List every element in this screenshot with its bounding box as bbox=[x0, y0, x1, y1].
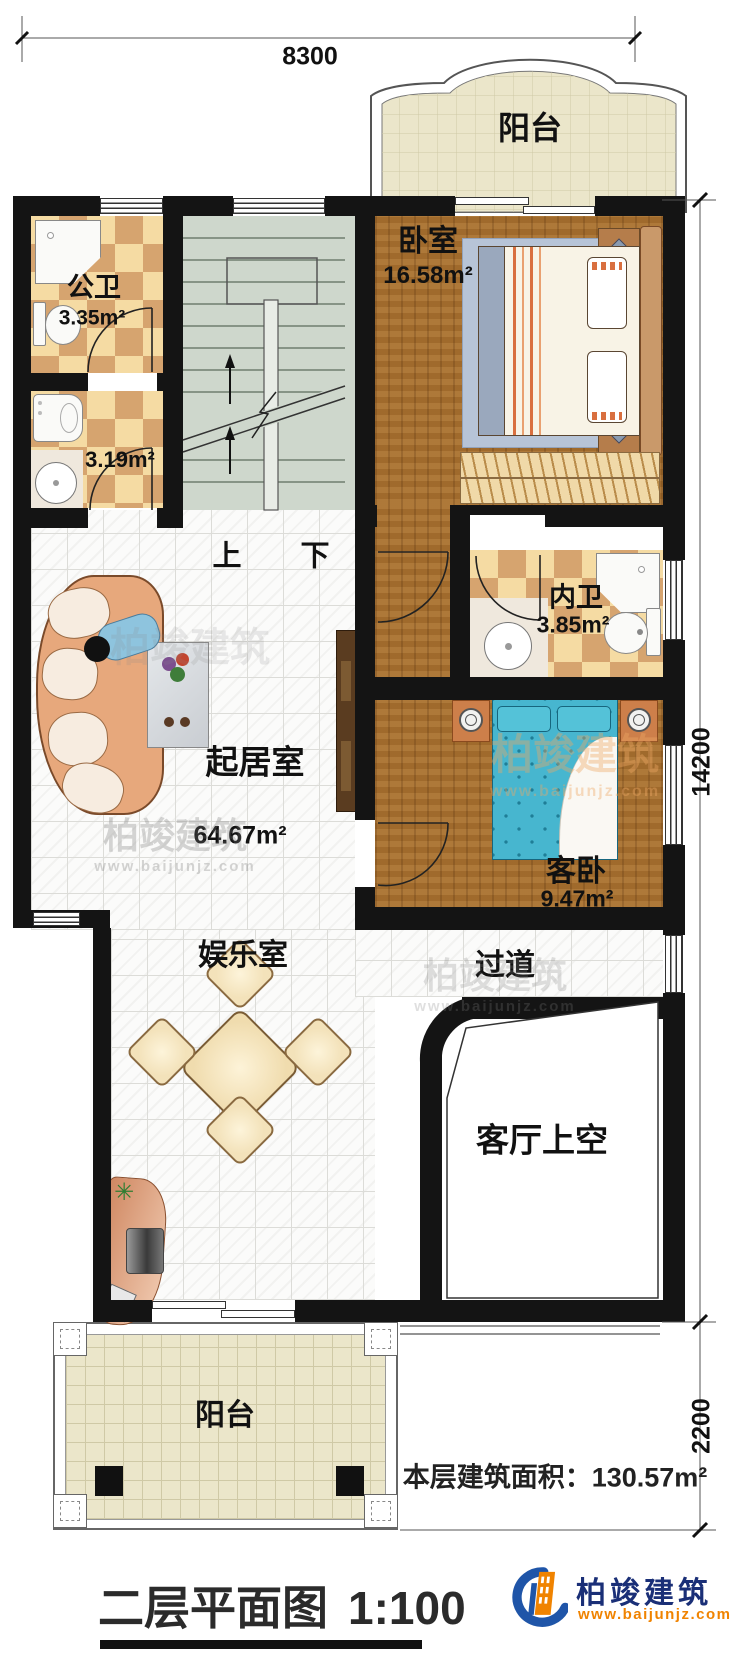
sliding-door bbox=[152, 1301, 226, 1309]
room-area-guest: 9.47m² bbox=[541, 888, 614, 911]
pillow bbox=[587, 351, 627, 423]
bed-headboard bbox=[640, 226, 662, 456]
area-summary: 本层建筑面积：130.57m² bbox=[403, 1465, 708, 1492]
person-head bbox=[84, 636, 110, 662]
shower-drain-dot bbox=[47, 232, 54, 239]
room-label-inner-bath: 内卫 bbox=[549, 585, 603, 612]
shower-drain-dot bbox=[638, 566, 645, 573]
room-label-corridor: 过道 bbox=[475, 951, 535, 981]
dim-right-lower: 2200 bbox=[690, 1398, 715, 1454]
pillow bbox=[587, 257, 627, 329]
wall bbox=[13, 373, 88, 391]
balcony-post bbox=[364, 1322, 398, 1356]
wall bbox=[450, 527, 470, 677]
guest-bed bbox=[492, 698, 618, 860]
wall bbox=[93, 1300, 152, 1322]
sliding-door bbox=[455, 197, 529, 205]
stairs-down-label: 下 bbox=[300, 543, 329, 572]
title-underline bbox=[100, 1640, 422, 1649]
wall bbox=[355, 505, 377, 527]
column bbox=[336, 1466, 364, 1496]
bed bbox=[478, 246, 640, 436]
cabinet bbox=[336, 630, 356, 812]
room-area-inner-bath: 3.85m² bbox=[537, 614, 610, 637]
window bbox=[33, 912, 80, 926]
room-label-entertainment: 娱乐室 bbox=[198, 941, 288, 971]
room-label-public-bath: 公卫 bbox=[67, 275, 121, 302]
wall bbox=[157, 508, 183, 528]
wall bbox=[295, 1300, 680, 1322]
pillow bbox=[557, 706, 611, 732]
logo: 柏竣建筑 www.baijunjz.com bbox=[512, 1558, 722, 1650]
wall bbox=[13, 196, 31, 928]
wall bbox=[355, 907, 685, 930]
column bbox=[95, 1466, 123, 1496]
wall bbox=[355, 677, 685, 700]
sliding-door bbox=[221, 1310, 295, 1318]
plan-title: 二层平面图 bbox=[98, 1582, 328, 1634]
computer-monitor bbox=[126, 1228, 164, 1274]
toilet-bowl bbox=[604, 612, 648, 654]
stairs-up-label: 上 bbox=[212, 543, 241, 572]
blanket-fold bbox=[559, 737, 617, 859]
coffee-table bbox=[147, 642, 209, 748]
room-label-balcony-bottom: 阳台 bbox=[195, 1401, 255, 1431]
wall bbox=[420, 1055, 442, 1322]
wall bbox=[355, 527, 375, 820]
room-area-living: 64.67m² bbox=[193, 824, 286, 849]
bath-sink bbox=[484, 622, 532, 670]
wall bbox=[450, 505, 685, 515]
nightstand bbox=[452, 700, 490, 742]
logo-url: www.baijunjz.com bbox=[578, 1606, 731, 1623]
logo-icon bbox=[512, 1564, 568, 1634]
room-area-bedroom: 16.58m² bbox=[383, 264, 472, 288]
wall bbox=[355, 196, 375, 527]
room-label-living: 起居室 bbox=[206, 746, 305, 779]
balcony-post bbox=[364, 1494, 398, 1528]
plant: ✳ bbox=[114, 1178, 134, 1207]
window bbox=[233, 198, 325, 214]
nightstand bbox=[620, 700, 658, 742]
room-area-public-bath: 3.35m² bbox=[59, 308, 126, 329]
floor-plan-canvas: ✳ bbox=[0, 0, 750, 1662]
room-label-bedroom: 卧室 bbox=[398, 227, 458, 257]
pillow bbox=[497, 706, 551, 732]
wall bbox=[163, 196, 183, 528]
room-label-void: 客厅上空 bbox=[476, 1124, 608, 1157]
wall bbox=[462, 997, 663, 1019]
area-summary-value: 130.57m² bbox=[592, 1463, 708, 1493]
toilet bbox=[646, 608, 661, 656]
wall bbox=[663, 993, 685, 1322]
balcony-post bbox=[53, 1494, 87, 1528]
window bbox=[100, 198, 163, 214]
washing-machine bbox=[33, 394, 83, 442]
sliding-door bbox=[523, 206, 595, 214]
room-label-guest: 客卧 bbox=[546, 857, 606, 887]
window bbox=[665, 935, 683, 993]
wardrobe bbox=[460, 452, 660, 504]
room-area-utility: 3.19m² bbox=[85, 449, 155, 471]
plan-scale: 1:100 bbox=[348, 1582, 466, 1634]
utility-sink bbox=[35, 462, 77, 504]
wall bbox=[13, 508, 88, 528]
dim-right-upper: 14200 bbox=[690, 727, 715, 797]
balcony-post bbox=[53, 1322, 87, 1356]
window bbox=[665, 560, 683, 640]
wall bbox=[93, 928, 111, 1322]
room-label-balcony-top: 阳台 bbox=[498, 112, 562, 144]
dim-top: 8300 bbox=[282, 45, 338, 70]
window bbox=[665, 745, 683, 845]
area-summary-label: 本层建筑面积： bbox=[403, 1463, 592, 1493]
title-block: 二层平面图1:100 bbox=[98, 1572, 466, 1638]
wall bbox=[325, 196, 455, 216]
